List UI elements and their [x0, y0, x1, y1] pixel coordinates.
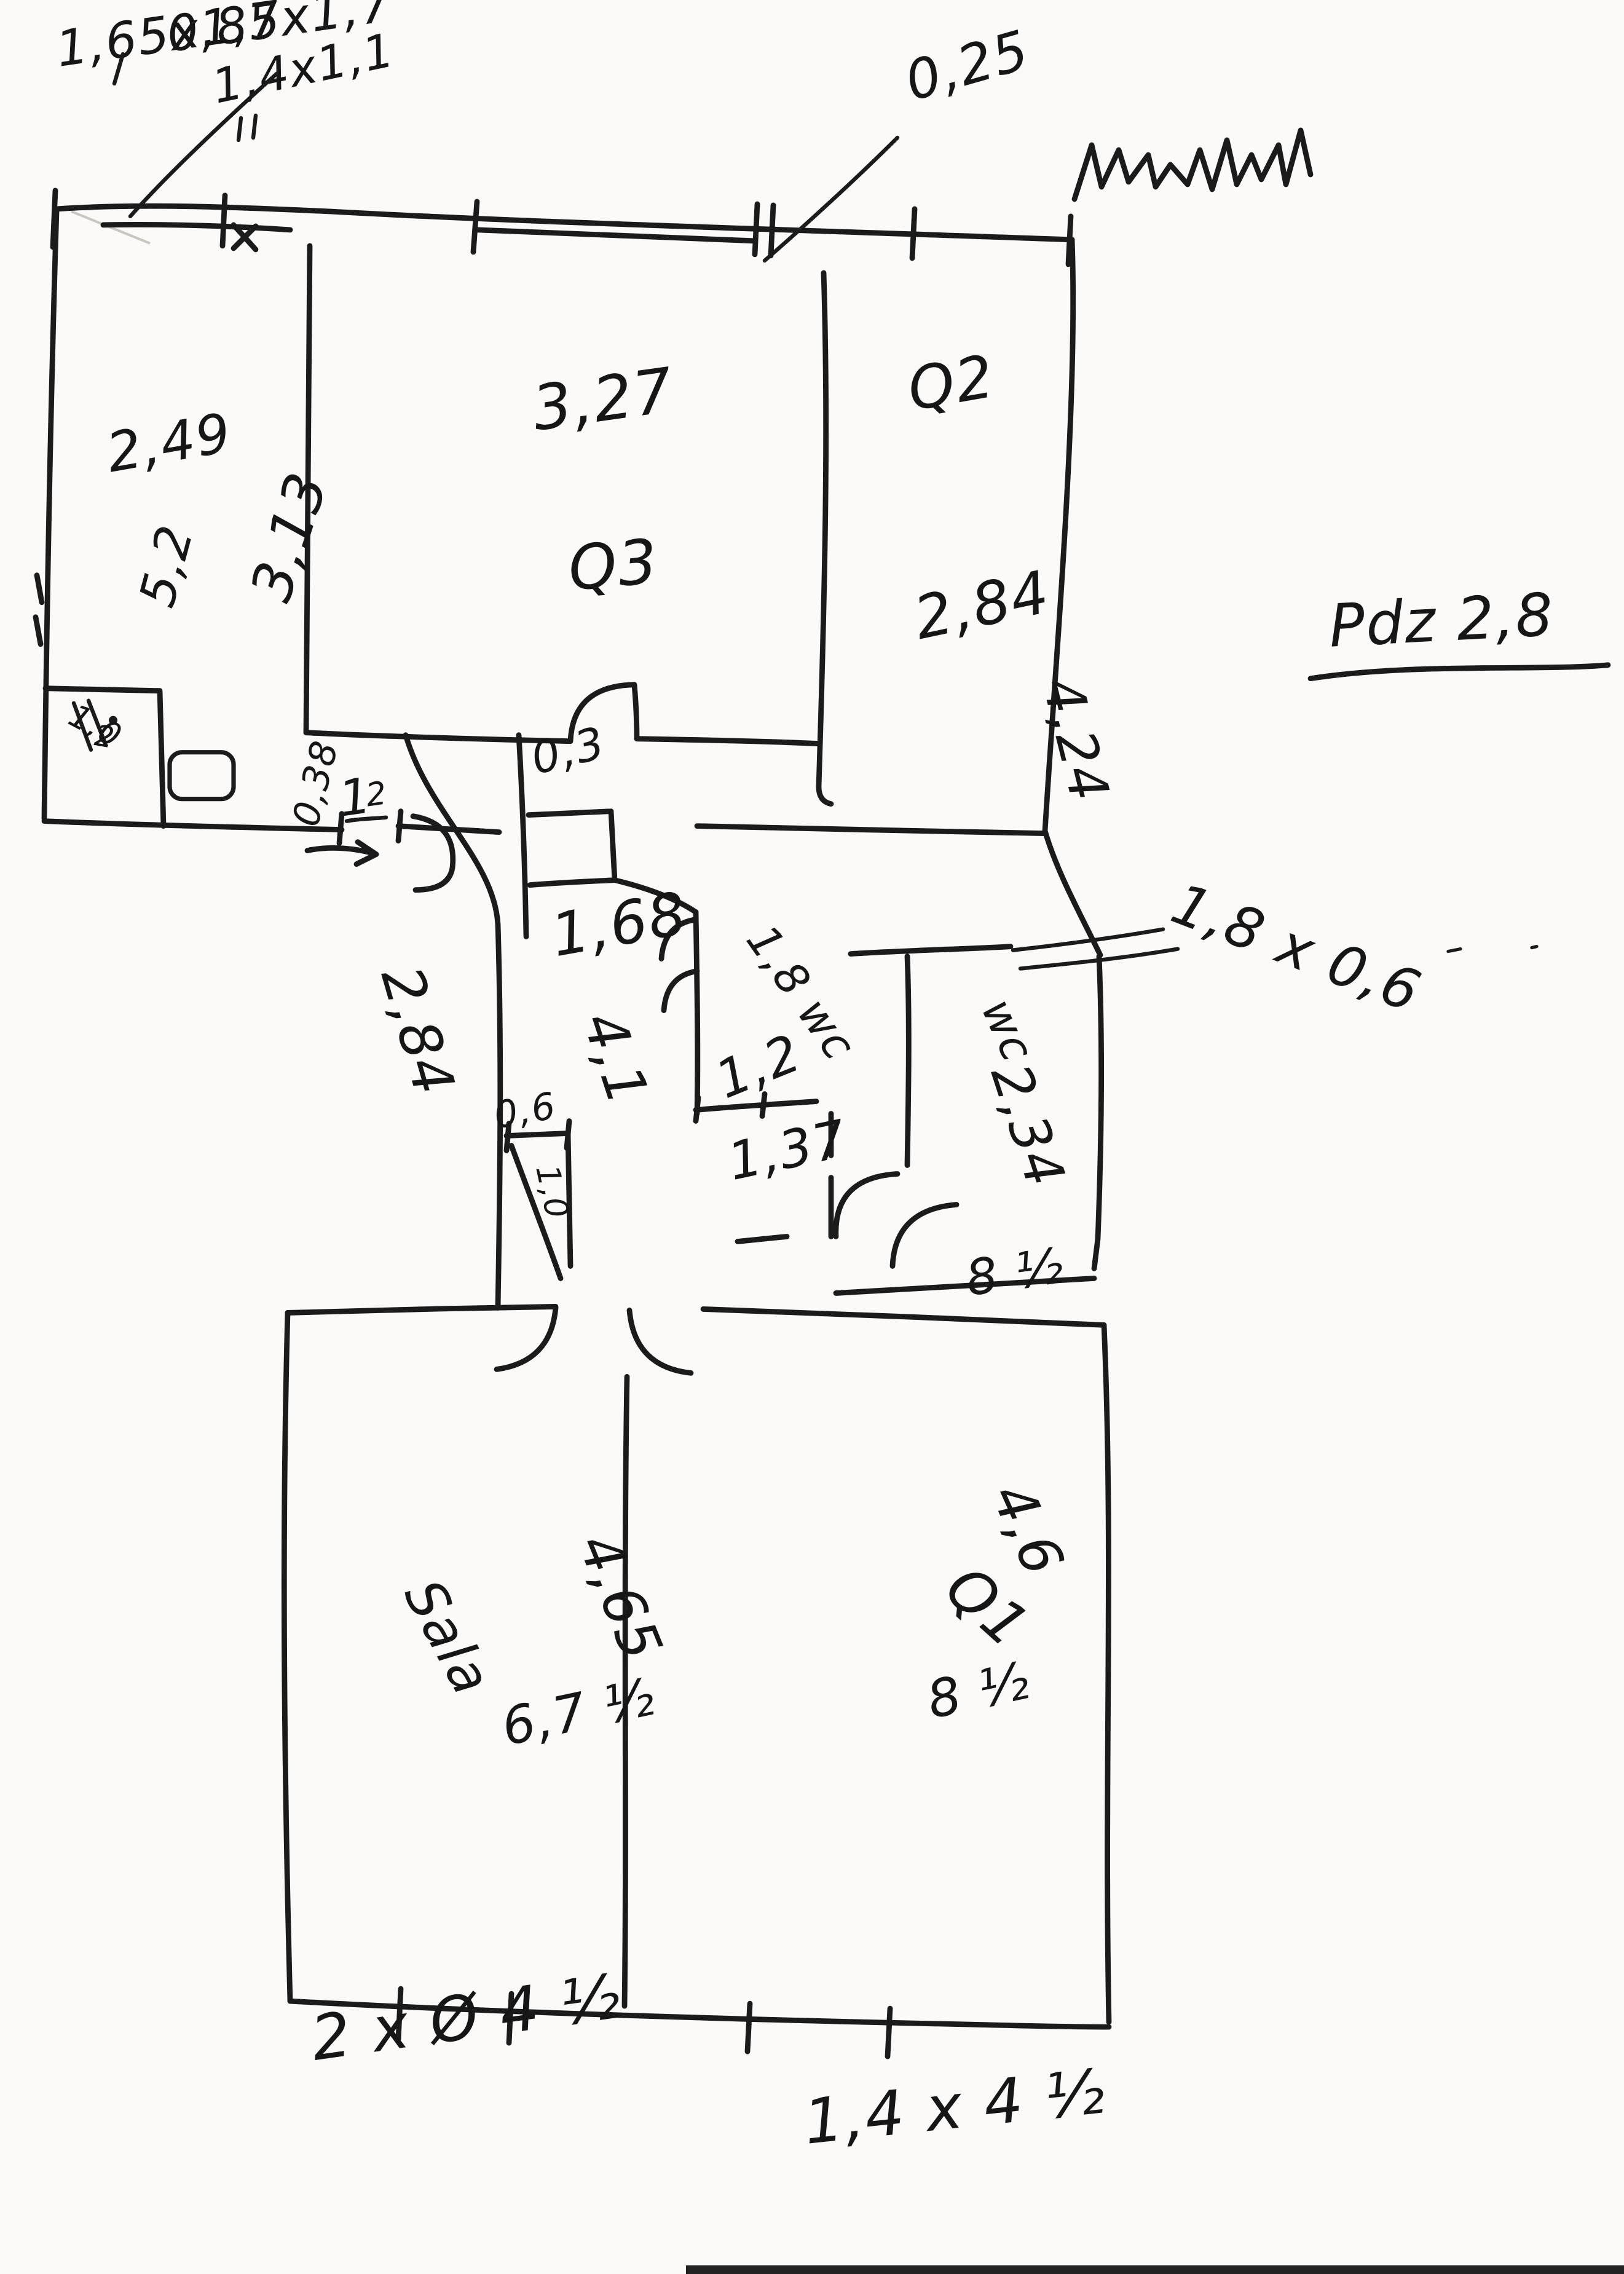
dim-2: 2 [363, 775, 390, 814]
room-q3: 3,27 Q3 3,13 [238, 273, 831, 804]
bottom-wall: 2 x Ø 4 ½ 1,4 x 4 ½ [290, 1960, 1109, 2158]
niche-box [45, 689, 164, 826]
door-arc-a [893, 1204, 956, 1266]
leader-line-b [130, 74, 277, 216]
door-arc-b [836, 1174, 897, 1236]
door-arc-sala [497, 1308, 556, 1369]
bath-width-dim: 1,68 [546, 878, 693, 970]
door-arc-q1 [629, 1310, 691, 1373]
wall-top-right [703, 1309, 1104, 1325]
wall-right [1104, 1325, 1109, 2022]
room-height-dim: 4,24 [1030, 671, 1122, 808]
wall-partition-upper [519, 735, 526, 937]
vestibule: 1 2 0,38 0,3 [285, 717, 610, 890]
room-width-dim: 8 ½ [922, 1650, 1035, 1731]
window-inner-line [477, 230, 755, 241]
wc-dim-85: 8 ½ [963, 1237, 1068, 1307]
wall-left [907, 957, 909, 1166]
window-inner-line [103, 224, 290, 230]
bath-dim-12: 1,2 [708, 1022, 810, 1110]
dim-03: 0,3 [526, 717, 610, 785]
room-height-dim: 5,2 [128, 519, 205, 613]
wall-left [44, 211, 57, 819]
illegible-scribble [1074, 130, 1311, 199]
room-height-dim: 4,65 [566, 1524, 676, 1670]
wc-door-dim: 1,8 x 0,6 [1163, 871, 1430, 1025]
tick-mark [238, 116, 256, 140]
room-q1: 4,6 Q1 8 ½ [922, 1325, 1109, 2022]
wall-right [1094, 957, 1102, 1269]
hall-width-dim: 2,84 [368, 959, 468, 1103]
wc-height-dim: 2,34 [979, 1056, 1078, 1195]
dash-left-wall [36, 575, 42, 644]
wall-q3-q2 [819, 273, 831, 804]
note-text: Pdz 2,8 [1327, 580, 1556, 661]
note-underline [1311, 665, 1608, 679]
window-dim-bottom-right: 1,4 x 4 ½ [800, 2055, 1109, 2158]
dim-038: 0,38 [285, 736, 347, 831]
room-width-dim: 3,27 [528, 354, 679, 445]
wall-right-upper [1045, 831, 1100, 955]
wall-left [284, 1313, 290, 2001]
faint-dashes [1448, 947, 1537, 952]
wall-top-double [529, 811, 615, 885]
wall-left-lower [696, 912, 698, 1114]
wall-top [851, 947, 1011, 954]
top-annotations: 1,65x1,7 0,85x1,7 1,4x1,1 0,25 [53, 0, 1311, 261]
wall-thickness-dim: 0,25 [898, 18, 1036, 113]
hall: 2,84 4,1 0,6 1,0 [368, 735, 661, 1308]
room-label: Q2 [903, 342, 1000, 425]
room-width-dim: 2,49 [102, 401, 237, 485]
room-sala: Sala 4,65 6,7 ½ [284, 1313, 675, 2006]
entry-arrow [307, 842, 376, 864]
hall-height-dim: 4,1 [570, 1004, 661, 1113]
wc-room: 1,8 x 0,6 wc 2,34 8 ½ [836, 831, 1537, 1308]
scan-edge [686, 2265, 1624, 2274]
top-wall [329, 202, 1072, 264]
room-label: Q3 [566, 525, 661, 604]
room-name: Sala [392, 1569, 504, 1705]
wall-top-main [329, 211, 1072, 240]
sink-fixture [170, 752, 234, 799]
leader-line-c [765, 138, 897, 261]
window-wall [57, 206, 329, 211]
floorplan-sketch: 1,65x1,7 0,85x1,7 1,4x1,1 0,25 Pdz 2,8 1… [0, 0, 1624, 2274]
wall-bottom [696, 1102, 816, 1110]
room-height-dim: 3,13 [238, 464, 341, 609]
wall-top-left [288, 1306, 556, 1313]
note-block: Pdz 2,8 [1311, 580, 1608, 679]
lower-corridor-wall [288, 1306, 1104, 1373]
window-dim-bottom-left: 2 x Ø 4 ½ [307, 1960, 625, 2074]
room-q2: Q2 2,84 4,24 [697, 240, 1122, 834]
room-width-dim: 6,7 ½ [497, 1667, 661, 1758]
room-width-dim: 2,84 [908, 558, 1055, 653]
wall-bottom [697, 826, 1045, 834]
